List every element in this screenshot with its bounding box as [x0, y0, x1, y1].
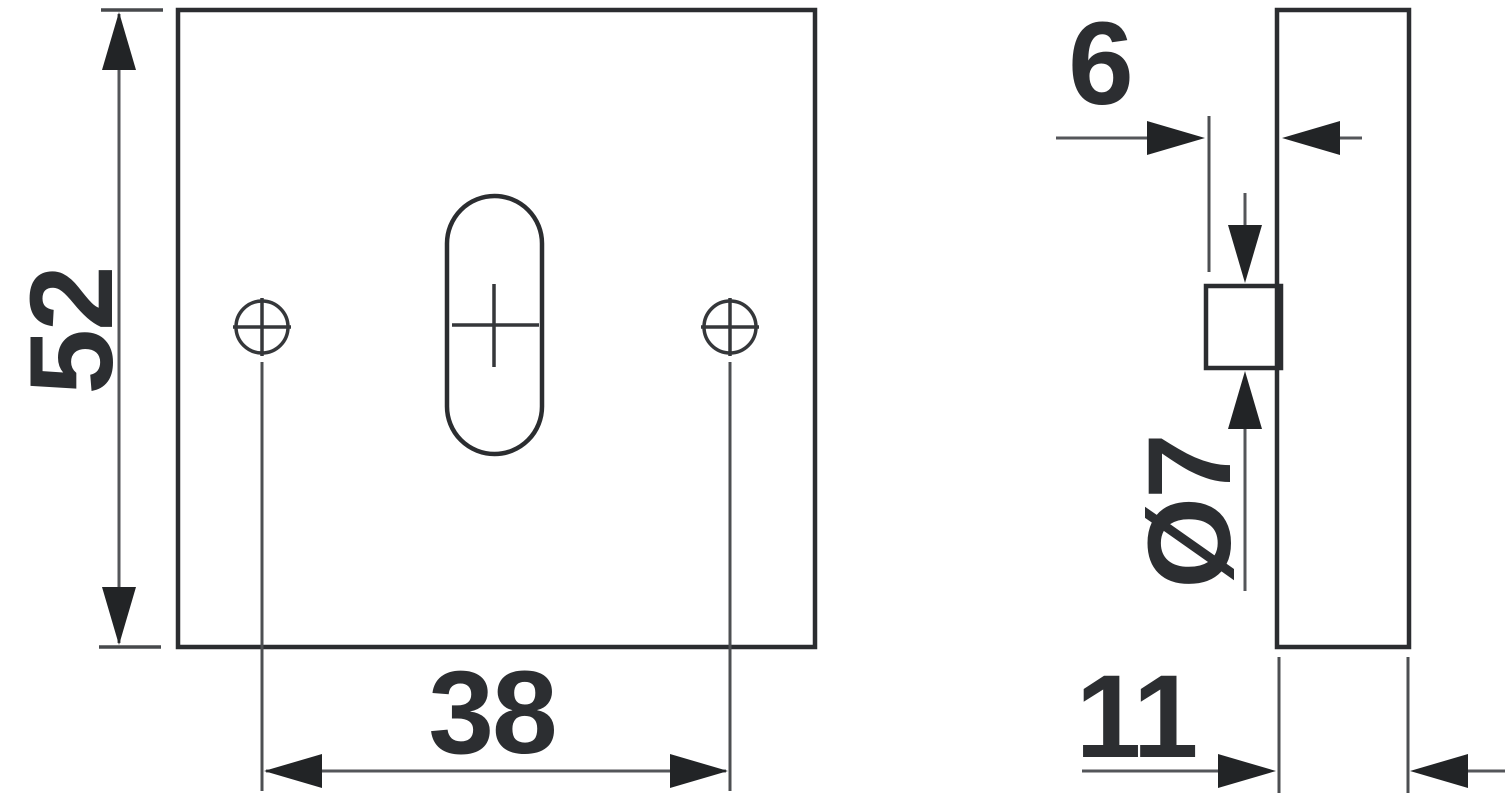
- drawing-page: 52 38 6 Ø7 11: [0, 0, 1505, 800]
- side-plate-outline: [1277, 10, 1409, 647]
- arrowhead-up-icon: [1228, 371, 1262, 429]
- dimension-label-height: 52: [6, 267, 138, 394]
- boss-outline: [1206, 286, 1281, 368]
- technical-drawing-canvas: 52 38 6 Ø7 11: [0, 0, 1505, 800]
- arrowhead-right-icon: [1147, 121, 1205, 155]
- arrowhead-down-icon: [102, 587, 136, 645]
- dimension-label-boss-diameter: Ø7: [1124, 435, 1256, 588]
- dimension-label-thickness: 11: [1076, 651, 1197, 783]
- dimension-thickness-11: 11: [1076, 651, 1505, 793]
- front-view: [178, 10, 815, 647]
- screw-hole-right: [701, 298, 759, 356]
- arrowhead-down-icon: [1228, 225, 1262, 283]
- arrowhead-up-icon: [102, 12, 136, 70]
- dimension-label-boss-protrusion: 6: [1068, 0, 1132, 130]
- arrowhead-left-icon: [264, 754, 322, 788]
- dimension-hole-spacing-38: 38: [262, 362, 730, 791]
- arrowhead-right-icon: [1218, 754, 1276, 788]
- dimension-height-52: 52: [6, 10, 163, 647]
- dimension-label-hole-spacing: 38: [428, 647, 555, 779]
- arrowhead-left-icon: [1282, 121, 1340, 155]
- arrowhead-right-icon: [670, 754, 728, 788]
- screw-hole-left: [233, 298, 291, 356]
- dimension-boss-diameter-7: Ø7: [1124, 193, 1262, 591]
- dimension-boss-protrusion-6: 6: [1056, 0, 1362, 272]
- arrowhead-left-icon: [1410, 754, 1468, 788]
